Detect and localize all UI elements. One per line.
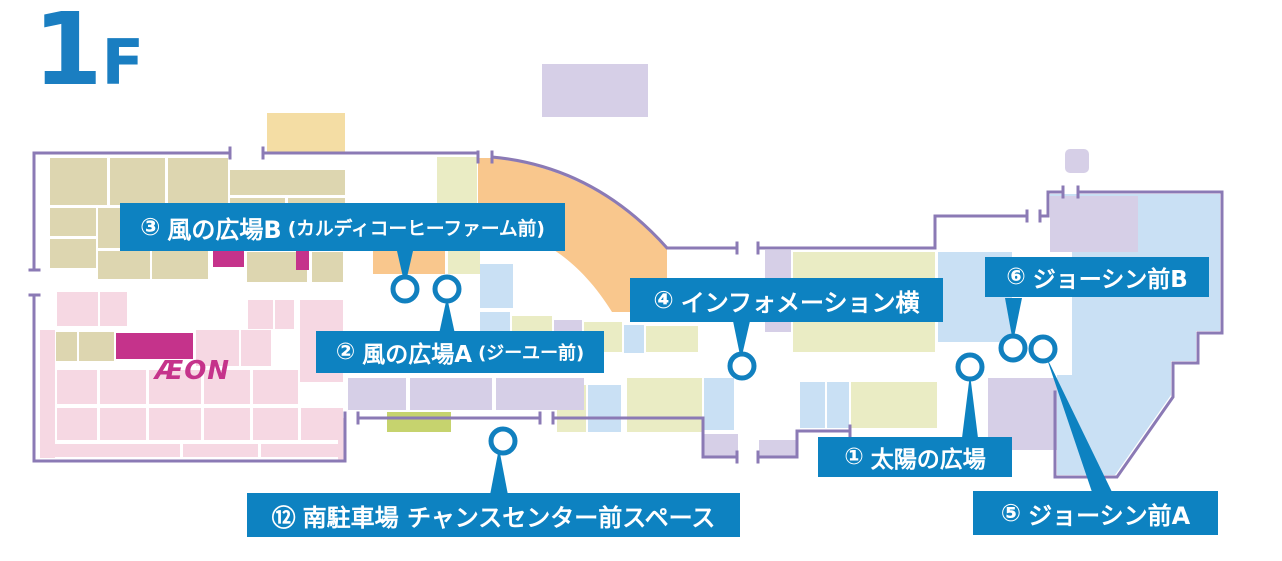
spot-label-2[interactable]: ② 風の広場A (ジーユー前) [316,331,604,373]
spot-1-number: ① [844,444,863,470]
spot-3-title: 風の広場B [167,210,281,245]
spot-marker-4[interactable] [730,354,754,378]
spot-label-3[interactable]: ③ 風の広場B (カルディコーヒーファーム前) [120,203,565,251]
spot-2-title: 風の広場A [362,335,472,369]
spot-2-note: (ジーユー前) [478,339,584,365]
aeon-logo: ÆON [152,356,230,386]
spot-label-12[interactable]: ⑫ 南駐車場 チャンスセンター前スペース [247,493,740,537]
spot-marker-6[interactable] [1001,336,1025,360]
spot-label-6[interactable]: ⑥ ジョーシン前B [985,257,1209,297]
spot-marker-3[interactable] [393,277,417,301]
spot-4-number: ④ [653,286,673,314]
spot-marker-5[interactable] [1031,337,1055,361]
floor-title: 1 F [33,0,141,100]
floor-number: 1 [33,0,100,100]
spot-5-number: ⑤ [1001,499,1021,527]
spot-12-title: 南駐車場 チャンスセンター前スペース [303,498,716,533]
spot-marker-1[interactable] [958,355,982,379]
spot-3-note: (カルディコーヒーファーム前) [288,214,545,241]
spot-6-title: ジョーシン前B [1033,260,1188,294]
spot-5-title: ジョーシン前A [1028,496,1190,531]
spot-2-number: ② [336,339,355,365]
spot-1-title: 太陽の広場 [871,440,986,474]
spot-label-1[interactable]: ① 太陽の広場 [818,437,1012,477]
spot-label-4[interactable]: ④ インフォメーション横 [630,278,943,322]
spot-6-number: ⑥ [1006,264,1025,290]
spot-4-title: インフォメーション横 [681,283,920,318]
top-blocks [267,64,1089,173]
spot-12-number: ⑫ [272,498,296,533]
spot-marker-2[interactable] [435,277,459,301]
spot-3-number: ③ [140,213,160,241]
floor-map-page: ÆON [0,0,1282,561]
spot-label-5[interactable]: ⑤ ジョーシン前A [973,491,1218,535]
spot-marker-12[interactable] [491,429,515,453]
floor-suffix: F [102,32,141,94]
